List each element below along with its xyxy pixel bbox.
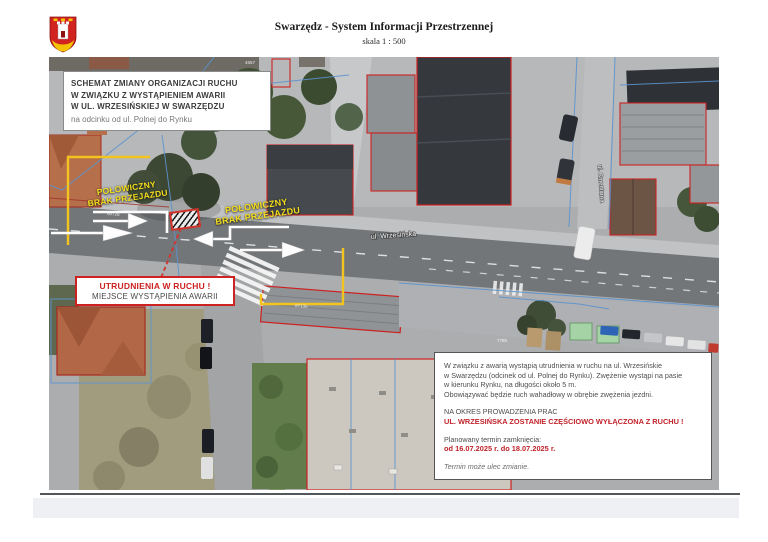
svg-text:4657: 4657: [245, 60, 256, 65]
scheme-title-box: SCHEMAT ZMIANY ORGANIZACJI RUCHU W ZWIĄZ…: [63, 71, 271, 131]
page-bottom-strip: [33, 498, 739, 518]
scheme-line: W ZWIĄZKU Z WYSTĄPIENIEM AWARII: [71, 90, 263, 102]
map-scale-label: skala 1 : 500: [0, 36, 768, 46]
info-closed-line: UL. WRZESIŃSKA ZOSTANIE CZĘŚCIOWO WYŁĄCZ…: [444, 417, 702, 427]
page-bottom-rule: [40, 493, 740, 495]
scheme-line: SCHEMAT ZMIANY ORGANIZACJI RUCHU: [71, 78, 263, 90]
svg-text:60726: 60726: [107, 211, 120, 217]
info-text: W związku z awarią wystąpią utrudnienia …: [444, 361, 702, 371]
info-text: Obowiązywać będzie ruch wahadłowy w obrę…: [444, 390, 702, 400]
printout-page: Swarzędz - System Informacji Przestrzenn…: [0, 0, 768, 542]
info-text: w kierunku Rynku, na długości około 5 m.: [444, 380, 702, 390]
info-box: W związku z awarią wystąpią utrudnienia …: [434, 352, 712, 480]
red-roof-house: [51, 299, 151, 383]
aerial-map: ul. Wrzesińska ul. Cmentarna 60726 60728…: [49, 57, 719, 490]
svg-text:7785: 7785: [497, 338, 508, 343]
info-dates: od 16.07.2025 r. do 18.07.2025 r.: [444, 444, 702, 454]
page-title: Swarzędz - System Informacji Przestrzenn…: [0, 21, 768, 33]
scheme-line: W UL. WRZESIŃSKIEJ W SWARZĘDZU: [71, 101, 263, 113]
scheme-subline: na odcinku od ul. Polnej do Rynku: [71, 114, 263, 126]
svg-text:60728: 60728: [109, 229, 122, 235]
warning-box: UTRUDNIENIA W RUCHU ! MIEJSCE WYSTĄPIENI…: [75, 276, 235, 306]
warning-line-2: MIEJSCE WYSTĄPIENIA AWARII: [79, 292, 231, 301]
info-text: w Swarzędzu (odcinek od ul. Polnej do Ry…: [444, 371, 702, 381]
info-note: Termin może ulec zmianie.: [444, 462, 702, 472]
svg-text:67135: 67135: [295, 303, 308, 309]
warning-line-1: UTRUDNIENIA W RUCHU !: [79, 281, 231, 291]
info-dates-label: Planowany termin zamknięcia:: [444, 435, 702, 445]
info-period-label: NA OKRES PROWADZENIA PRAC: [444, 407, 702, 417]
green-shelter: [570, 323, 592, 340]
